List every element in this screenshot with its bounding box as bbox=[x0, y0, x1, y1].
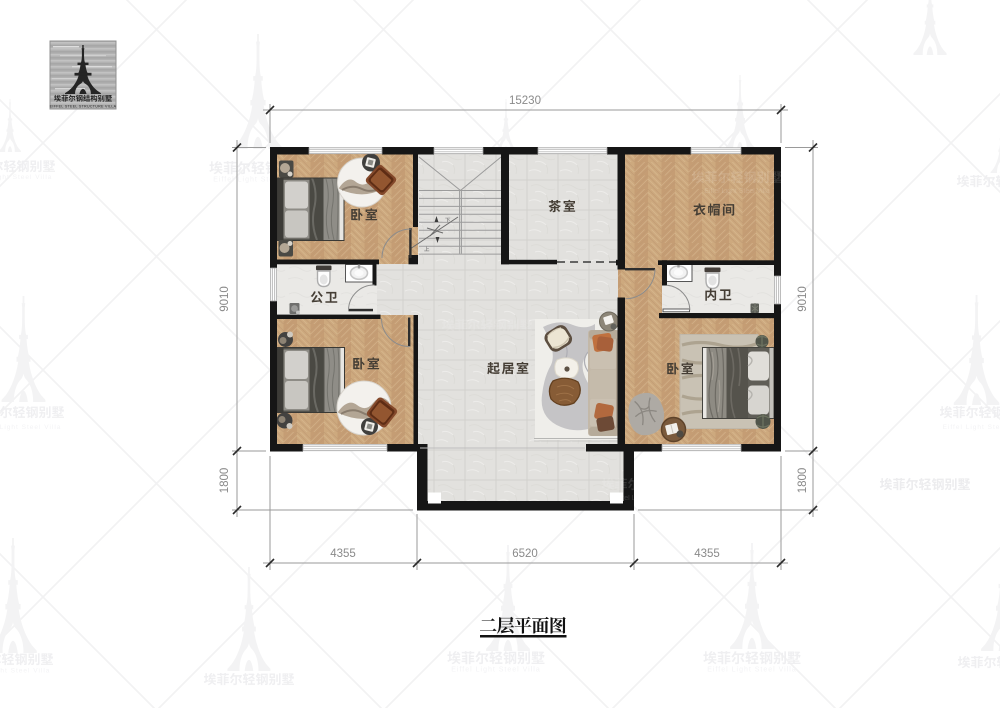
svg-text:Eiffel Light Steel Villa: Eiffel Light Steel Villa bbox=[614, 495, 680, 502]
svg-text:4355: 4355 bbox=[330, 548, 356, 560]
svg-text:Eiffel Light Steel Villa: Eiffel Light Steel Villa bbox=[707, 667, 797, 674]
svg-text:1800: 1800 bbox=[797, 468, 809, 494]
svg-text:Eiffel Light Steel Villa: Eiffel Light Steel Villa bbox=[0, 424, 61, 431]
svg-text:EIFFEL STEEL STRUCTURE VILLA: EIFFEL STEEL STRUCTURE VILLA bbox=[50, 105, 117, 109]
svg-text:Eiffel Light Steel Villa: Eiffel Light Steel Villa bbox=[0, 668, 50, 675]
svg-text:6520: 6520 bbox=[512, 548, 538, 560]
svg-text:Eiffel Light Steel Villa: Eiffel Light Steel Villa bbox=[451, 667, 541, 674]
svg-text:9010: 9010 bbox=[219, 286, 231, 312]
svg-text:Eiffel Light Steel Villa: Eiffel Light Steel Villa bbox=[943, 424, 1000, 431]
svg-text:4355: 4355 bbox=[694, 548, 720, 560]
svg-text:15230: 15230 bbox=[509, 95, 541, 107]
svg-text:9010: 9010 bbox=[797, 286, 809, 312]
svg-text:Eiffel Light Steel Villa: Eiffel Light Steel Villa bbox=[704, 188, 770, 195]
svg-text:1800: 1800 bbox=[219, 468, 231, 494]
svg-text:Eiffel Light Steel Villa: Eiffel Light Steel Villa bbox=[0, 174, 52, 181]
